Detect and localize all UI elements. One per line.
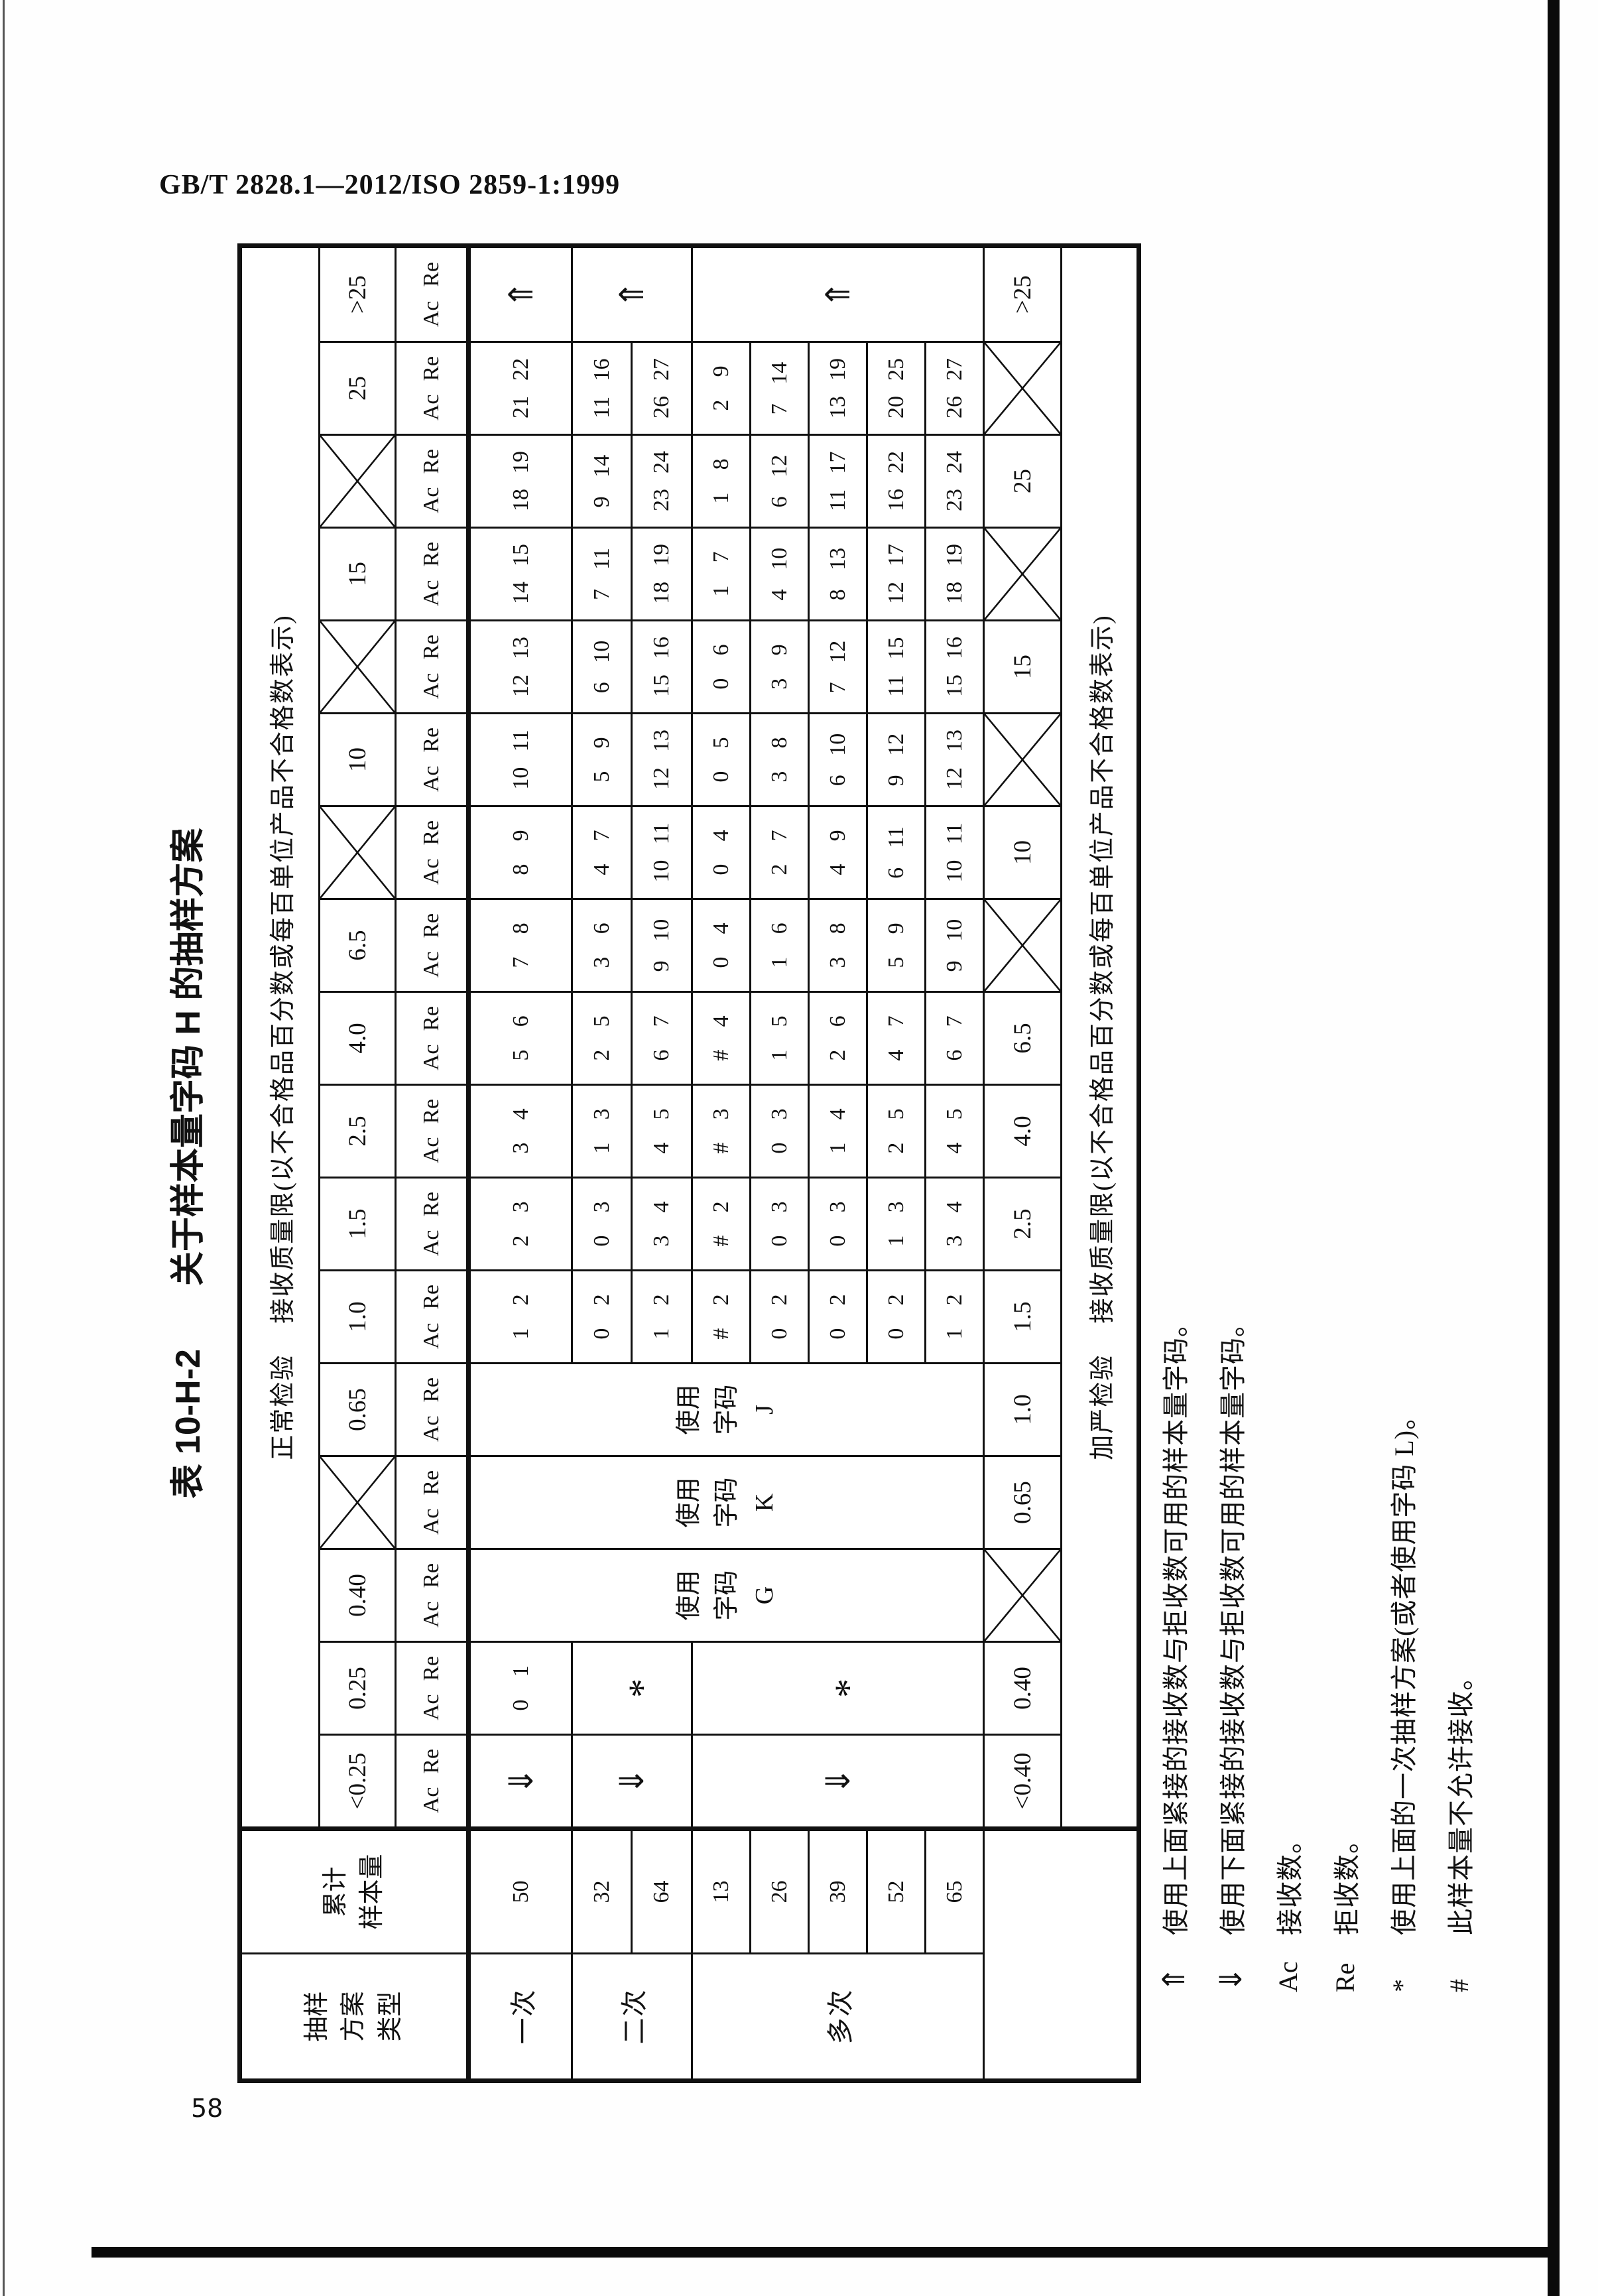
multiple-plan-cell: 611 (868, 805, 926, 898)
tightened-aql-label-crossed (985, 712, 1062, 805)
multiple-plan-cell: 39 (751, 619, 810, 712)
tightened-aql-label: 0.65 (985, 1455, 1062, 1548)
multiple-plan-cell: 26 (810, 991, 868, 1084)
footnote-symbol: Ac (1272, 1935, 1304, 1992)
multiple-plan-cell: 612 (751, 434, 810, 527)
aql-label-crossed (320, 1455, 397, 1548)
double-plan-cell: 1011 (633, 805, 693, 898)
multiple-plan-cell: 05 (693, 712, 751, 805)
crossed-out-cell-icon (320, 807, 395, 898)
single-plan-cell: 01 (471, 1641, 573, 1734)
aql-label: 25 (320, 341, 397, 434)
tightened-corner-empty-cell (985, 1826, 1137, 2078)
tightened-aql-label-crossed (985, 1548, 1062, 1641)
crossed-out-cell-icon (320, 621, 395, 712)
arrow-cell: ⇑ (693, 248, 985, 341)
star-cell: * (693, 1641, 985, 1734)
multiple-plan-cell: 1819 (926, 527, 985, 619)
single-plan-cell: 34 (471, 1084, 573, 1177)
crossed-out-cell-icon (320, 1457, 395, 1548)
double-plan-cell: 711 (573, 527, 633, 619)
aql-label: 10 (320, 712, 397, 805)
ac-re-label: AcRe (397, 248, 471, 341)
multiple-plan-cell: 49 (810, 805, 868, 898)
multiple-plan-cell: 03 (751, 1084, 810, 1177)
double-plan-cell: 47 (573, 805, 633, 898)
aql-label-crossed (320, 619, 397, 712)
double-plan-cell: 12 (633, 1269, 693, 1362)
multiple-plan-cell: 1217 (868, 527, 926, 619)
use-code-letter-cell: 使用字码K (471, 1455, 985, 1548)
aql-label: 4.0 (320, 991, 397, 1084)
ac-re-label: AcRe (397, 1455, 471, 1548)
cumulative-sample-size: 65 (926, 1826, 985, 1952)
ac-re-label: AcRe (397, 527, 471, 619)
cumulative-sample-size: 39 (810, 1826, 868, 1952)
double-plan-cell: 45 (633, 1084, 693, 1177)
multiple-plan-cell: 410 (751, 527, 810, 619)
multiple-plan-cell: 02 (868, 1269, 926, 1362)
single-plan-cell: 1415 (471, 527, 573, 619)
footnote-item: ⇓使用下面紧接的接收数与拒收数可用的样本量字码。 (1202, 1310, 1259, 1992)
footnote-text: 使用上面的一次抽样方案(或者使用字码 L)。 (1383, 1403, 1421, 1935)
type-column-header: 抽样方案类型 (242, 1952, 471, 2078)
table-title: 表 10-H-2关于样本量字码 H 的抽样方案 (168, 248, 209, 2078)
aql-label: 1.5 (320, 1177, 397, 1269)
plan-type-multiple: 多次 (693, 1952, 985, 2078)
multiple-plan-cell: 910 (926, 898, 985, 991)
aql-label: 0.25 (320, 1641, 397, 1734)
multiple-plan-cell: 12 (926, 1269, 985, 1362)
multiple-plan-cell: 912 (868, 712, 926, 805)
plan-type-single: 一次 (471, 1952, 573, 2078)
multiple-plan-cell: 714 (751, 341, 810, 434)
footnote-item: Ac接收数。 (1259, 1310, 1316, 1992)
ac-re-label: AcRe (397, 1548, 471, 1641)
multiple-plan-cell: 59 (868, 898, 926, 991)
ac-re-label: AcRe (397, 712, 471, 805)
crossed-out-cell-icon (320, 436, 395, 527)
double-plan-cell: 59 (573, 712, 633, 805)
ac-re-label: AcRe (397, 991, 471, 1084)
tightened-aql-label: >25 (985, 248, 1062, 341)
single-plan-cell: 1819 (471, 434, 573, 527)
multiple-plan-cell: 04 (693, 898, 751, 991)
ac-re-label: AcRe (397, 898, 471, 991)
multiple-plan-cell: 38 (751, 712, 810, 805)
multiple-plan-cell: 813 (810, 527, 868, 619)
footnote-text: 使用上面紧接的接收数与拒收数可用的样本量字码。 (1154, 1310, 1193, 1935)
multiple-plan-cell: #3 (693, 1084, 751, 1177)
double-plan-cell: 36 (573, 898, 633, 991)
multiple-plan-cell: 712 (810, 619, 868, 712)
footnote-symbol: Re (1329, 1935, 1361, 1992)
single-plan-cell: 12 (471, 1269, 573, 1362)
use-code-letter-cell: 使用字码G (471, 1548, 985, 1641)
single-plan-cell: 1213 (471, 619, 573, 712)
ac-re-label: AcRe (397, 1084, 471, 1177)
multiple-plan-cell: 1011 (926, 805, 985, 898)
multiple-plan-cell: 03 (751, 1177, 810, 1269)
footnote-item: Re拒收数。 (1316, 1310, 1373, 1992)
aql-label: 6.5 (320, 898, 397, 991)
arrow-cell: ⇑ (573, 248, 693, 341)
multiple-plan-cell: 1516 (926, 619, 985, 712)
multiple-plan-cell: 1622 (868, 434, 926, 527)
scan-edge-left (3, 0, 5, 2296)
multiple-plan-cell: 13 (868, 1177, 926, 1269)
multiple-plan-cell: 04 (693, 805, 751, 898)
multiple-plan-cell: 02 (810, 1269, 868, 1362)
use-code-letter-cell: 使用字码J (471, 1362, 985, 1455)
multiple-plan-cell: 06 (693, 619, 751, 712)
tightened-aql-label-crossed (985, 527, 1062, 619)
crossed-out-cell-icon (985, 900, 1060, 991)
footnote-text: 使用下面紧接的接收数与拒收数可用的样本量字码。 (1211, 1310, 1250, 1935)
footnote-symbol: # (1444, 1935, 1475, 1992)
tightened-inspection-header: 加严检验接收质量限(以不合格品百分数或每百单位产品不合格数表示) (1062, 248, 1137, 1826)
double-plan-cell: 67 (633, 991, 693, 1084)
footnote-item: *使用上面的一次抽样方案(或者使用字码 L)。 (1373, 1310, 1430, 1992)
cumulative-sample-size: 50 (471, 1826, 573, 1952)
multiple-plan-cell: 2627 (926, 341, 985, 434)
aql-label: 0.65 (320, 1362, 397, 1455)
scanned-standard-page: { "page": { "standard_ref": "GB/T 2828.1… (0, 0, 1598, 2296)
tightened-aql-label: 4.0 (985, 1084, 1062, 1177)
cumulative-sample-size: 13 (693, 1826, 751, 1952)
tightened-aql-label-crossed (985, 341, 1062, 434)
footnote-symbol: * (1386, 1935, 1418, 1992)
double-plan-cell: 2324 (633, 434, 693, 527)
footnote-text: 此样本量不允许接收。 (1440, 1663, 1478, 1935)
multiple-plan-cell: 34 (926, 1177, 985, 1269)
footnote-symbol: ⇓ (1213, 1935, 1249, 1992)
single-plan-cell: 89 (471, 805, 573, 898)
tightened-aql-label: 25 (985, 434, 1062, 527)
arrow-cell: ⇓ (693, 1734, 985, 1826)
multiple-plan-cell: 610 (810, 712, 868, 805)
crossed-out-cell-icon (985, 529, 1060, 619)
double-plan-cell: 1516 (633, 619, 693, 712)
single-plan-cell: 23 (471, 1177, 573, 1269)
single-plan-cell: 78 (471, 898, 573, 991)
scan-edge-bottom (92, 2247, 1560, 2258)
multiple-plan-cell: 38 (810, 898, 868, 991)
plan-type-double: 二次 (573, 1952, 693, 2078)
footnote-list: ⇑使用上面紧接的接收数与拒收数可用的样本量字码。⇓使用下面紧接的接收数与拒收数可… (1145, 1310, 1487, 1992)
ac-re-label: AcRe (397, 434, 471, 527)
aql-label: <0.25 (320, 1734, 397, 1826)
tightened-aql-label: 10 (985, 805, 1062, 898)
size-column-header: 累计样本量 (242, 1826, 471, 1952)
tightened-aql-label: <0.40 (985, 1734, 1062, 1826)
ac-re-label: AcRe (397, 805, 471, 898)
sampling-table: 抽样方案类型累计样本量正常检验接收质量限(以不合格品百分数或每百单位产品不合格数… (237, 243, 1141, 2083)
cumulative-sample-size: 52 (868, 1826, 926, 1952)
multiple-plan-cell: 2025 (868, 341, 926, 434)
crossed-out-cell-icon (985, 343, 1060, 434)
cumulative-sample-size: 26 (751, 1826, 810, 1952)
single-plan-cell: 1011 (471, 712, 573, 805)
multiple-plan-cell: 18 (693, 434, 751, 527)
aql-label-crossed (320, 805, 397, 898)
double-plan-cell: 03 (573, 1177, 633, 1269)
multiple-plan-cell: 29 (693, 341, 751, 434)
ac-re-label: AcRe (397, 1362, 471, 1455)
tightened-aql-label: 2.5 (985, 1177, 1062, 1269)
cumulative-sample-size: 64 (633, 1826, 693, 1952)
multiple-plan-cell: 2324 (926, 434, 985, 527)
multiple-plan-cell: 1115 (868, 619, 926, 712)
multiple-plan-cell: 15 (751, 991, 810, 1084)
double-plan-cell: 25 (573, 991, 633, 1084)
footnote-text: 拒收数。 (1325, 1826, 1364, 1935)
double-plan-cell: 910 (633, 898, 693, 991)
aql-label: 0.40 (320, 1548, 397, 1641)
tightened-aql-label: 6.5 (985, 991, 1062, 1084)
footnote-item: ⇑使用上面紧接的接收数与拒收数可用的样本量字码。 (1145, 1310, 1202, 1992)
single-plan-cell: 56 (471, 991, 573, 1084)
multiple-plan-cell: 1319 (810, 341, 868, 434)
tightened-aql-label: 15 (985, 619, 1062, 712)
multiple-plan-cell: #4 (693, 991, 751, 1084)
multiple-plan-cell: #2 (693, 1177, 751, 1269)
ac-re-label: AcRe (397, 1269, 471, 1362)
double-plan-cell: 1819 (633, 527, 693, 619)
double-plan-cell: 914 (573, 434, 633, 527)
arrow-cell: ⇑ (471, 248, 573, 341)
aql-label: 15 (320, 527, 397, 619)
ac-re-label: AcRe (397, 1734, 471, 1826)
multiple-plan-cell: 1213 (926, 712, 985, 805)
normal-inspection-header: 正常检验接收质量限(以不合格品百分数或每百单位产品不合格数表示) (242, 248, 320, 1826)
footnote-item: #此样本量不允许接收。 (1430, 1310, 1487, 1992)
multiple-plan-cell: 02 (751, 1269, 810, 1362)
arrow-cell: ⇓ (573, 1734, 693, 1826)
footnote-symbol: ⇑ (1156, 1935, 1192, 1992)
double-plan-cell: 13 (573, 1084, 633, 1177)
table-title-text: 关于样本量字码 H 的抽样方案 (169, 828, 208, 1286)
arrow-cell: ⇓ (471, 1734, 573, 1826)
double-plan-cell: 610 (573, 619, 633, 712)
ac-re-label: AcRe (397, 1177, 471, 1269)
tightened-aql-label: 1.5 (985, 1269, 1062, 1362)
multiple-plan-cell: 1117 (810, 434, 868, 527)
aql-label-crossed (320, 434, 397, 527)
multiple-plan-cell: 17 (693, 527, 751, 619)
aql-label: 2.5 (320, 1084, 397, 1177)
double-plan-cell: 34 (633, 1177, 693, 1269)
ac-re-label: AcRe (397, 619, 471, 712)
tightened-aql-label: 1.0 (985, 1362, 1062, 1455)
tightened-aql-label-crossed (985, 898, 1062, 991)
multiple-plan-cell: 45 (926, 1084, 985, 1177)
aql-label: >25 (320, 248, 397, 341)
aql-label: 1.0 (320, 1269, 397, 1362)
multiple-plan-cell: 27 (751, 805, 810, 898)
single-plan-cell: 2122 (471, 341, 573, 434)
double-plan-cell: 1213 (633, 712, 693, 805)
double-plan-cell: 02 (573, 1269, 633, 1362)
ac-re-label: AcRe (397, 1641, 471, 1734)
standard-reference-header: GB/T 2828.1—2012/ISO 2859-1:1999 (159, 170, 620, 200)
multiple-plan-cell: 16 (751, 898, 810, 991)
scan-edge-right (1548, 0, 1560, 2296)
double-plan-cell: 1116 (573, 341, 633, 434)
tightened-aql-label: 0.40 (985, 1641, 1062, 1734)
crossed-out-cell-icon (985, 714, 1060, 805)
multiple-plan-cell: 03 (810, 1177, 868, 1269)
table-title-number: 表 10-H-2 (169, 1349, 208, 1498)
double-plan-cell: 2627 (633, 341, 693, 434)
crossed-out-cell-icon (985, 1550, 1060, 1641)
ac-re-label: AcRe (397, 341, 471, 434)
multiple-plan-cell: 14 (810, 1084, 868, 1177)
star-cell: * (573, 1641, 693, 1734)
multiple-plan-cell: 67 (926, 991, 985, 1084)
multiple-plan-cell: #2 (693, 1269, 751, 1362)
rotated-table-sheet: 表 10-H-2关于样本量字码 H 的抽样方案 抽样方案类型累计样本量正常检验接… (149, 248, 1542, 2125)
multiple-plan-cell: 47 (868, 991, 926, 1084)
footnote-text: 接收数。 (1268, 1826, 1307, 1935)
multiple-plan-cell: 25 (868, 1084, 926, 1177)
cumulative-sample-size: 32 (573, 1826, 633, 1952)
